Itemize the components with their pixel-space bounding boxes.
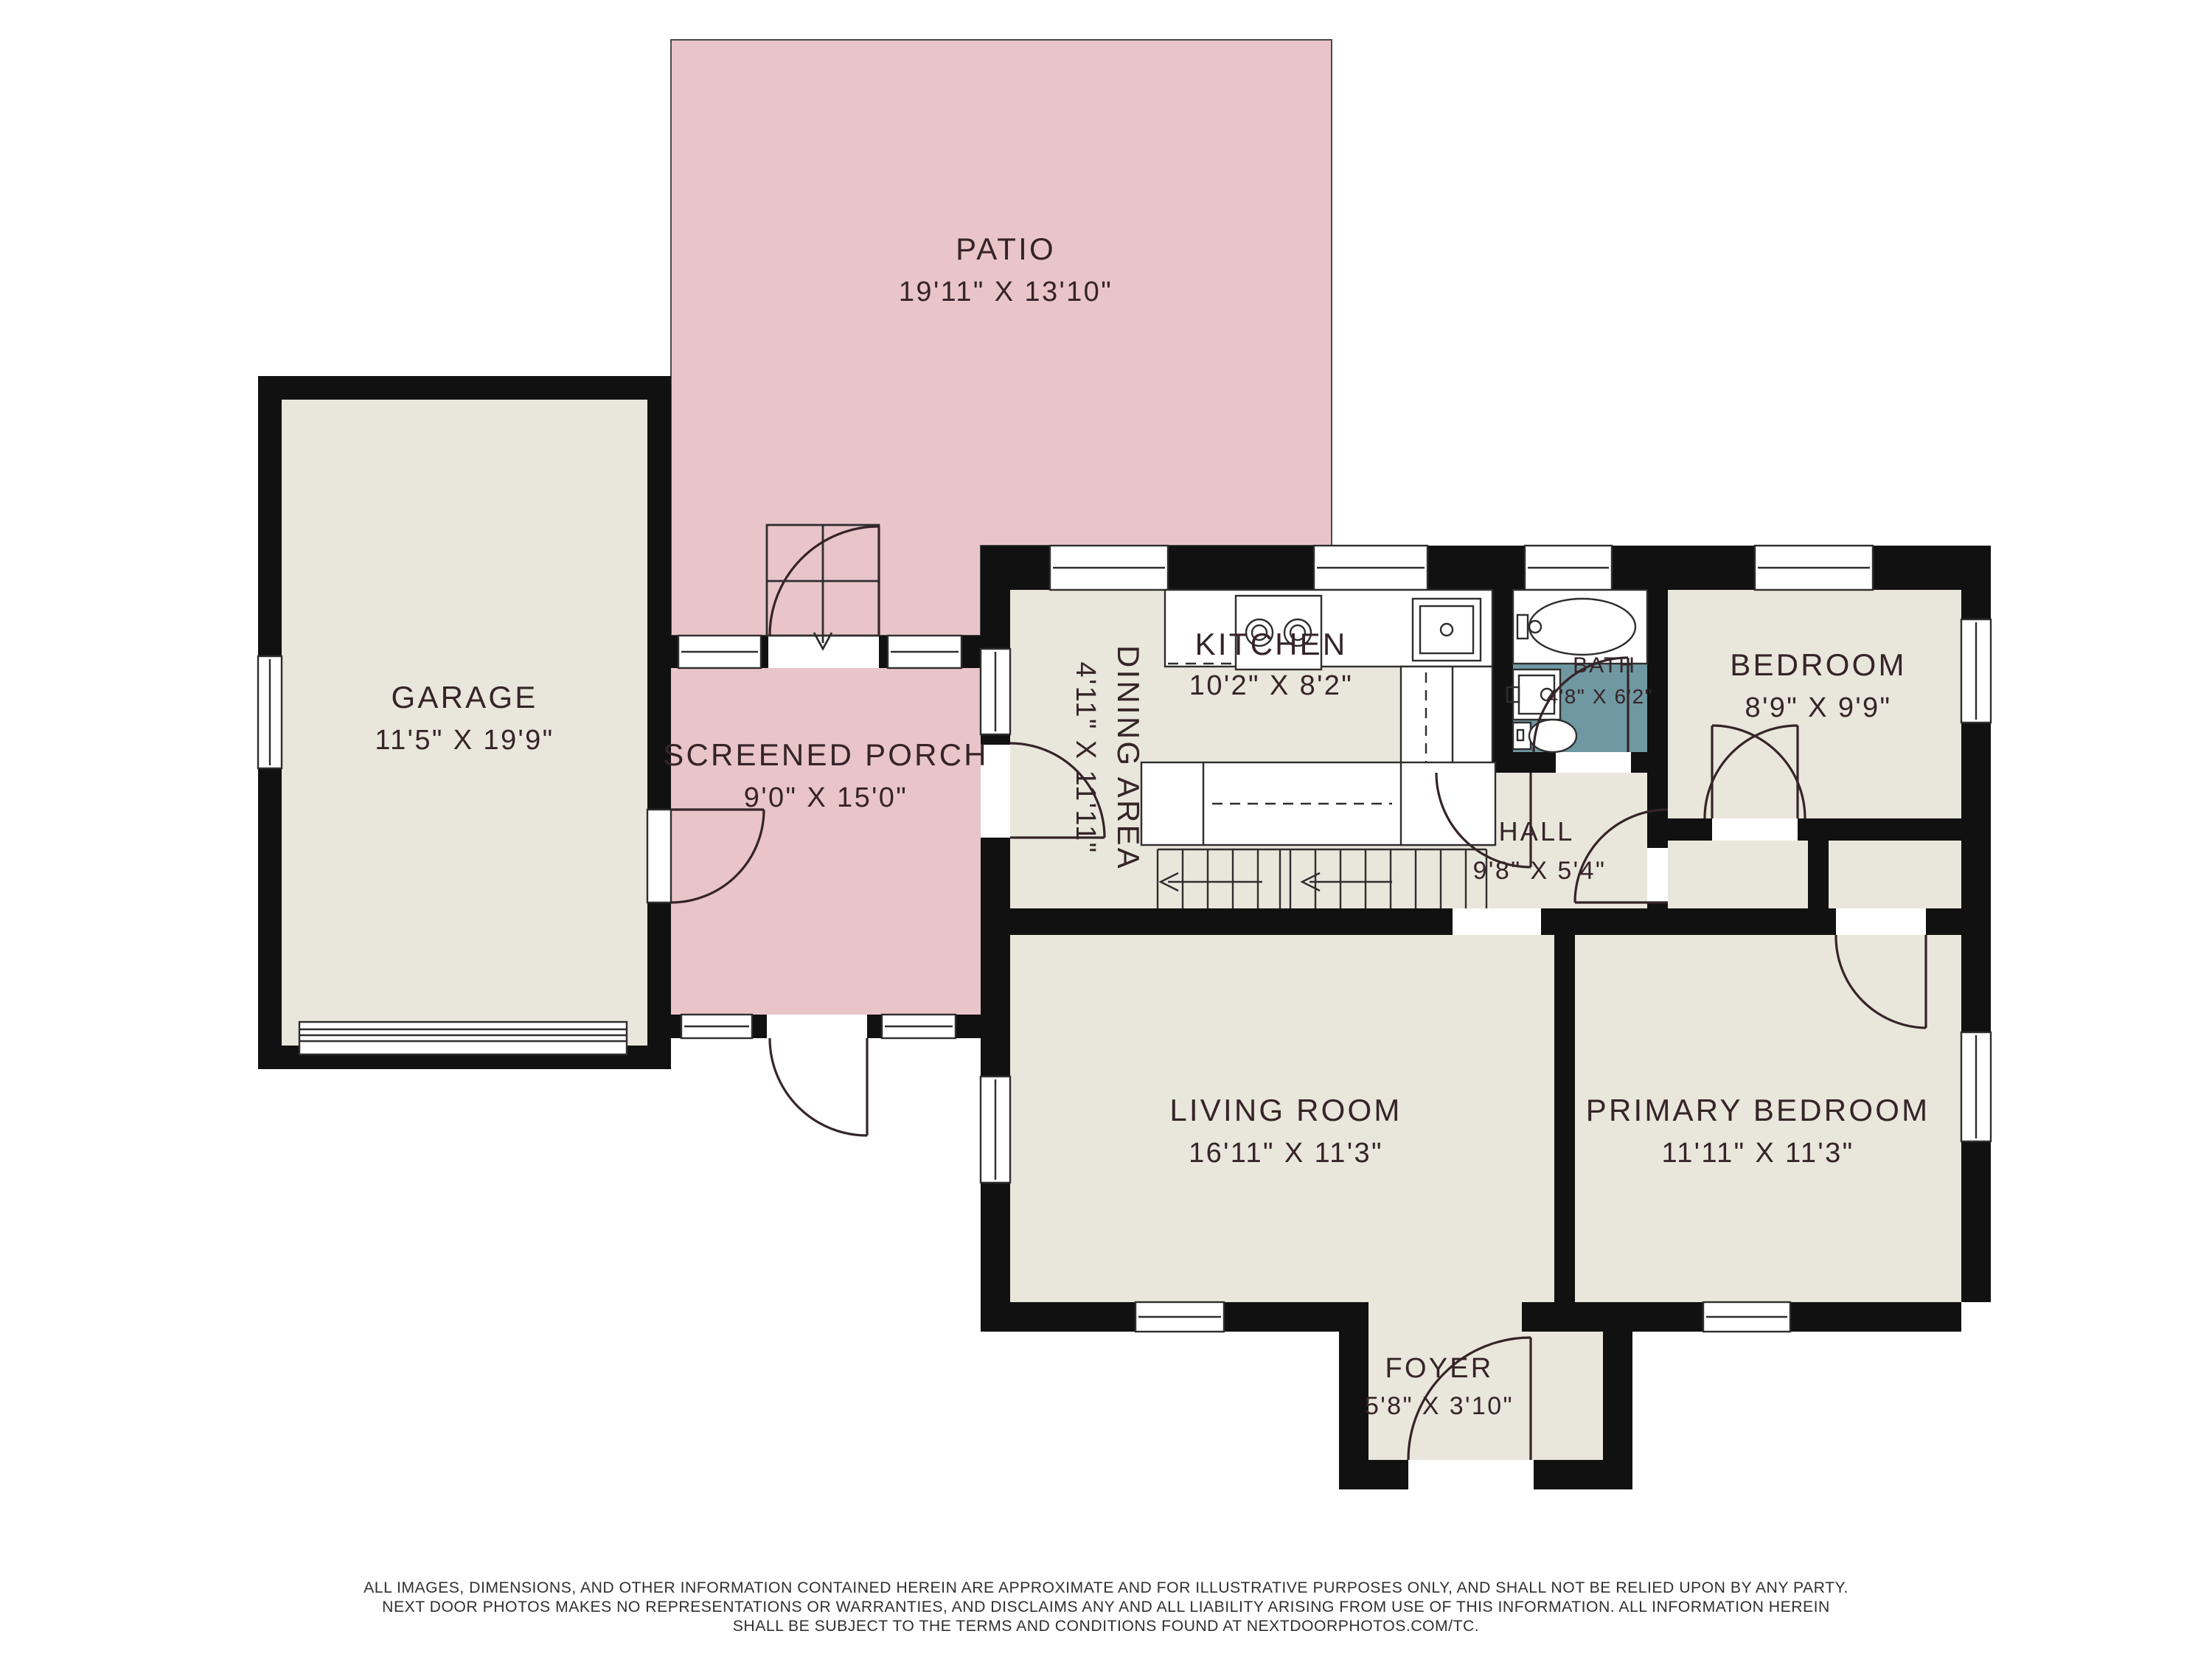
hall-dims: 9'8" X 5'4" — [1473, 857, 1607, 885]
foyer-floor — [1368, 1302, 1522, 1332]
door-gap — [1647, 848, 1668, 902]
kitchen-dims: 10'2" X 8'2" — [1189, 670, 1353, 701]
door-gap — [767, 1015, 867, 1038]
door-gap — [1556, 752, 1631, 773]
garage-dims: 11'5" X 19'9" — [375, 725, 554, 756]
kitchen-label: KITCHEN — [1195, 627, 1348, 661]
foyer-dims: 5'8" X 3'10" — [1365, 1392, 1514, 1420]
wall — [981, 1302, 1135, 1332]
foyer-label: FOYER — [1385, 1353, 1494, 1384]
disclaimer-line-1: ALL IMAGES, DIMENSIONS, AND OTHER INFORM… — [364, 1579, 1848, 1596]
disclaimer-line-3: SHALL BE SUBJECT TO THE TERMS AND CONDIT… — [733, 1618, 1479, 1635]
door-gap — [1712, 818, 1798, 841]
garage-door — [299, 1022, 627, 1054]
bath-wall — [1492, 590, 1513, 773]
patio-dims: 19'11" X 13'10" — [899, 276, 1113, 307]
bath-label: BATH — [1573, 653, 1636, 678]
kitchen-sink-icon — [1413, 599, 1481, 661]
patio-label: PATIO — [956, 232, 1056, 266]
primary-bedroom-dims: 11'11" X 11'3" — [1661, 1138, 1854, 1169]
closet-wall — [1808, 841, 1829, 908]
screened-porch-floor — [671, 668, 981, 1015]
screened-porch-dims: 9'0" X 15'0" — [744, 782, 908, 813]
wall — [1554, 935, 1575, 1302]
living-room-label: LIVING ROOM — [1169, 1093, 1402, 1127]
door-gap — [647, 810, 671, 902]
bedroom-dims: 8'9" X 9'9" — [1745, 692, 1892, 723]
toilet-icon — [1513, 720, 1576, 752]
bathtub-icon — [1513, 590, 1647, 664]
primary-bedroom-label: PRIMARY BEDROOM — [1586, 1093, 1930, 1127]
wall — [1224, 1302, 1368, 1332]
dining-area-dims: 4'11" X 11'11" — [1070, 661, 1101, 854]
bedroom-label: BEDROOM — [1730, 647, 1906, 682]
wall — [1522, 1302, 1703, 1332]
dining-area-label: DINING AREA — [1111, 645, 1146, 871]
living-room-dims: 16'11" X 11'3" — [1189, 1138, 1383, 1169]
foyer-wall — [1603, 1332, 1632, 1460]
door-gap — [1408, 1460, 1534, 1489]
disclaimer-line-2: NEXT DOOR PHOTOS MAKES NO REPRESENTATION… — [382, 1599, 1830, 1615]
garage-floor — [282, 400, 647, 1046]
door-gap — [1836, 908, 1926, 935]
floor-plan: PATIO 19'11" X 13'10" GARAGE 11'5" X 19'… — [0, 0, 2212, 1659]
screened-porch-label: SCREENED PORCH — [663, 737, 989, 772]
garage-label: GARAGE — [392, 680, 538, 714]
hall-label: HALL — [1499, 816, 1575, 846]
bath-dims: 4'8" X 6'2" — [1547, 685, 1654, 708]
opening — [1453, 908, 1541, 935]
wall — [1668, 818, 1961, 841]
wall — [1790, 1302, 1961, 1332]
